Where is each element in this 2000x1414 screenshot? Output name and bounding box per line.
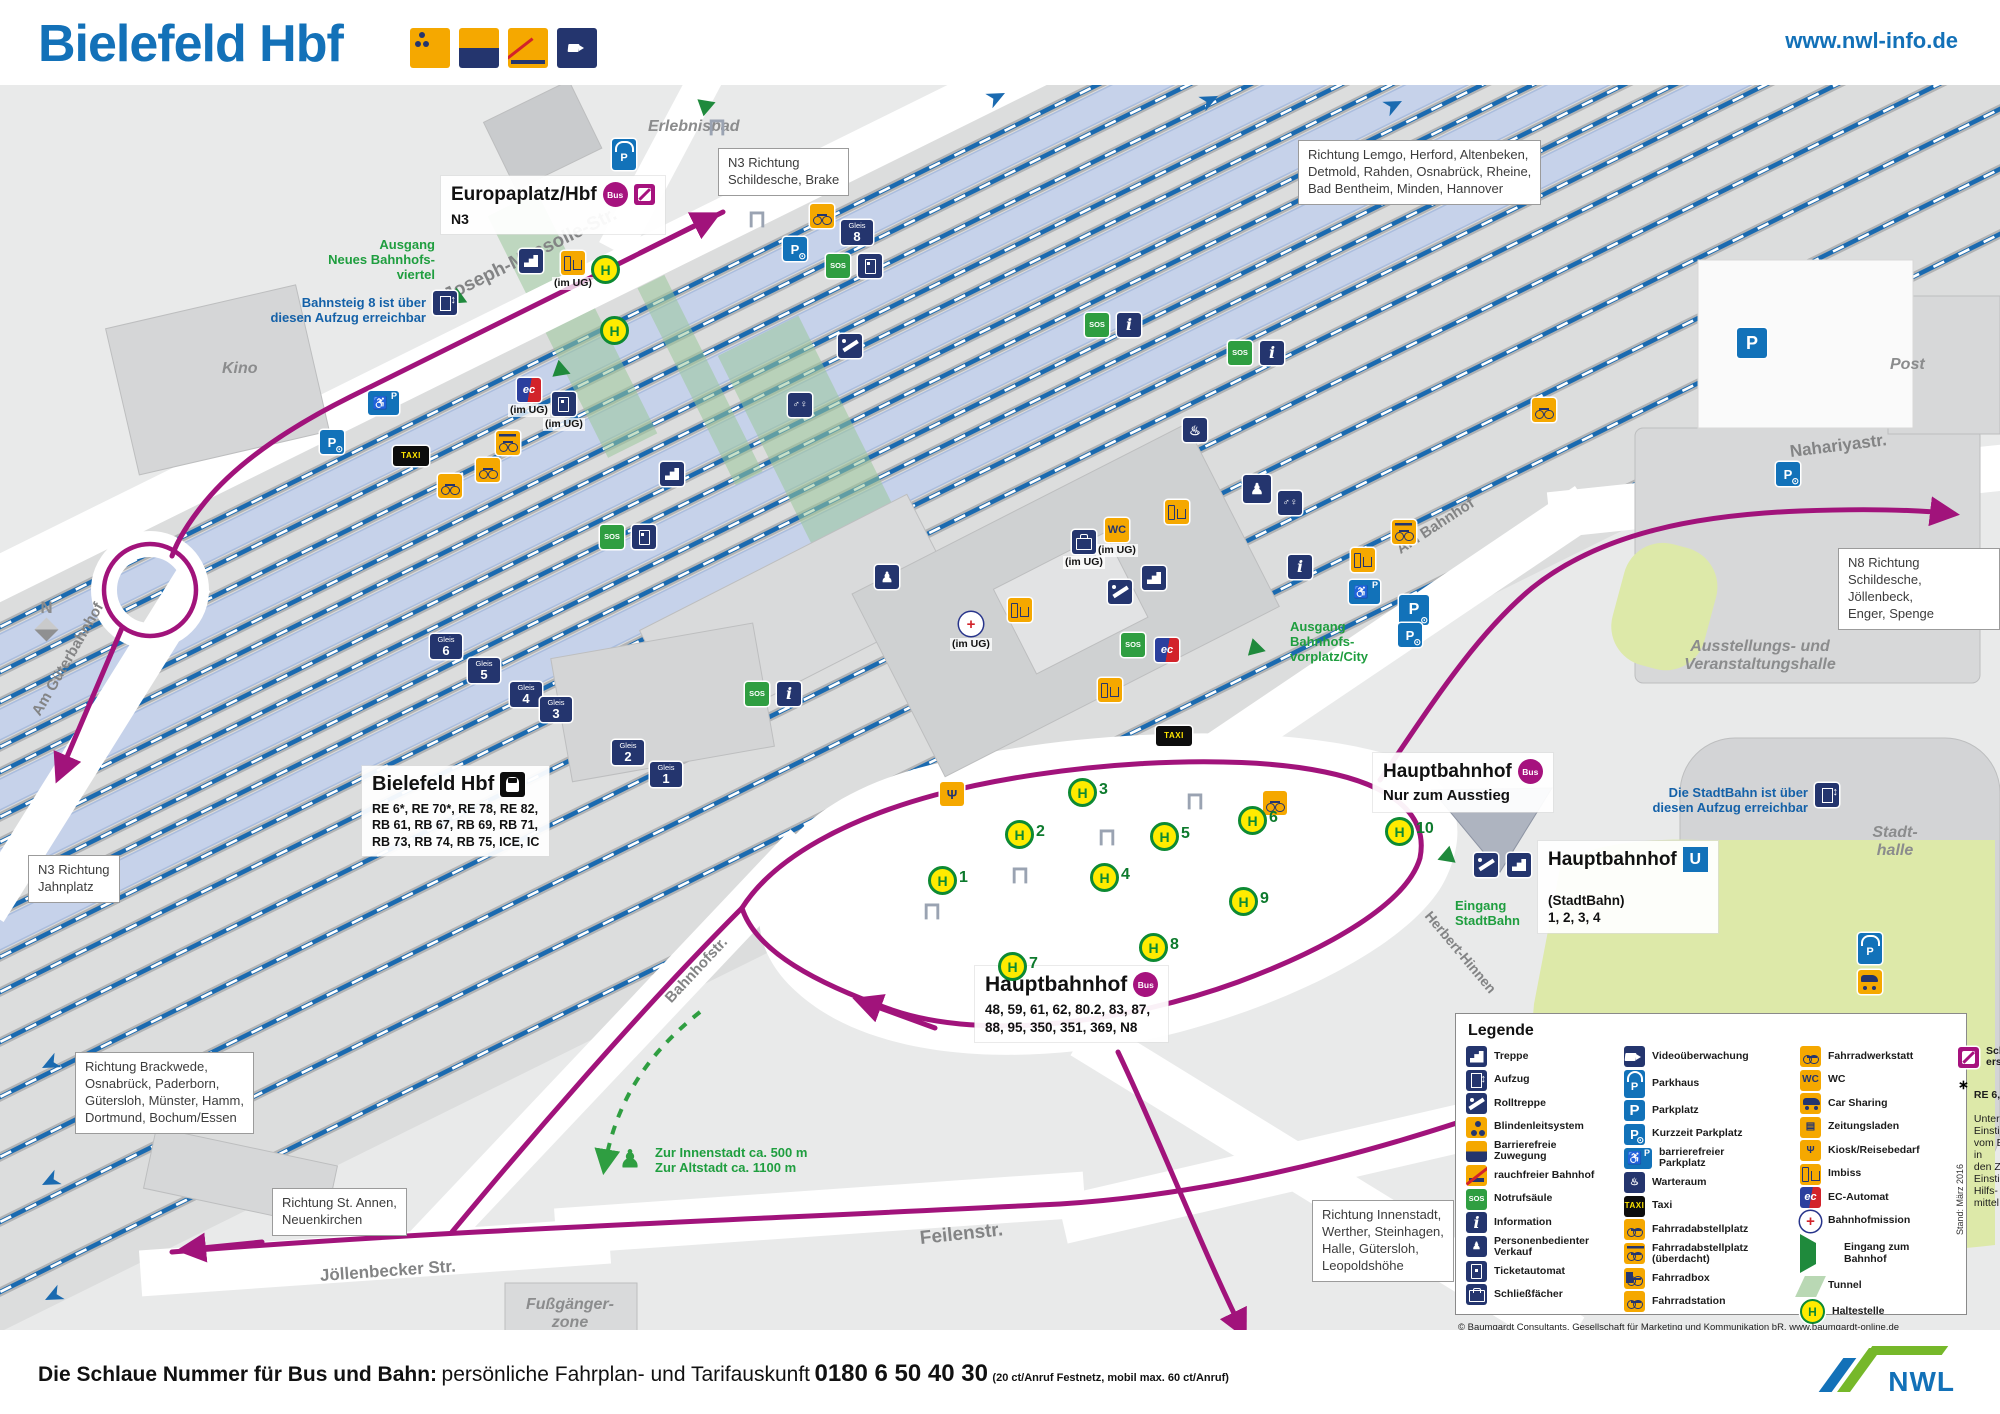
kurzzeit-parkplatz-icon: P xyxy=(1399,595,1429,625)
taxi-glyph: TAXI xyxy=(1156,726,1192,746)
legend-item: Fahrradstation xyxy=(1624,1291,1792,1312)
wc-icon: WC xyxy=(1800,1070,1821,1091)
stairs-glyph xyxy=(519,249,543,273)
station-box-hauptbahnhof-exit: Hauptbahnhof Bus Nur zum Ausstieg xyxy=(1373,753,1553,812)
gleis-number: 6 xyxy=(430,644,462,657)
bus-badge: Bus xyxy=(1518,759,1543,784)
bus-stop: H xyxy=(600,316,629,345)
legend-column-3: FahrradwerkstattWCWCCar Sharing▤Zeitungs… xyxy=(1800,1046,1950,1324)
bus-stop-10: H10 xyxy=(1385,817,1414,846)
shelter-icon: ⊓ xyxy=(920,900,944,924)
direction-box: N3 Richtung Jahnplatz xyxy=(28,855,120,903)
legend-label: Eingang zum Bahnhof xyxy=(1844,1242,1909,1265)
warteraum-glyph: ♨ xyxy=(1183,418,1207,442)
shelter-glyph: ⊓ xyxy=(1008,864,1032,888)
fahrradwerkstatt-glyph xyxy=(1532,398,1556,422)
imbiss-glyph xyxy=(561,251,585,275)
parkhaus-glyph: P xyxy=(612,139,636,170)
kurzzeit-parkplatz-glyph: P xyxy=(1776,462,1800,486)
stop-number: 10 xyxy=(1416,820,1434,838)
legend-label: Imbiss xyxy=(1828,1168,1861,1179)
videoueberwachung-icon xyxy=(557,28,597,68)
legend: Legende TreppeAufzugRolltreppeBlindenlei… xyxy=(1455,1013,1967,1315)
station-name: Bielefeld Hbf xyxy=(372,773,494,796)
imbiss-icon xyxy=(1165,500,1189,524)
legend-item: ♨Warteraum xyxy=(1624,1172,1792,1193)
zeitungsladen-icon: ▤ xyxy=(1800,1117,1821,1138)
legend-label: Taxi xyxy=(1652,1200,1672,1211)
information-icon: i xyxy=(1288,555,1312,579)
toilets-icon: ♂♀ xyxy=(788,393,812,417)
kurzzeit-parkplatz-glyph: P xyxy=(1398,623,1422,647)
exit-note: Nur zum Ausstieg xyxy=(1383,786,1543,806)
information-icon: i xyxy=(777,682,801,706)
fahrradwerkstatt-icon xyxy=(1532,398,1556,422)
barrierefreier-parkplatz-icon: ♿ xyxy=(368,391,399,415)
entrance-stadtbahn-glyph xyxy=(1434,846,1455,868)
legend-label: Rolltreppe xyxy=(1494,1098,1546,1109)
ec-automat-icon: ec xyxy=(1155,638,1179,662)
im-ug-caption: (im UG) xyxy=(543,418,585,431)
legend-note-text: Unterschiedliche Einstiegshöhen vom Bahn… xyxy=(1974,1113,2000,1209)
schienenersatzverkehr-icon xyxy=(1958,1047,1979,1068)
area-label: Kino xyxy=(222,360,258,378)
bus-stop-1: H1 xyxy=(928,866,957,895)
bus-badge: Bus xyxy=(603,182,628,207)
aufzug-icon xyxy=(1815,783,1839,807)
legend-item: Fahrradabstellplatz xyxy=(1624,1219,1792,1240)
legend-label: Fahrradbox xyxy=(1652,1273,1710,1284)
station-name: Hauptbahnhof xyxy=(1383,761,1512,783)
blindenleitsystem-icon xyxy=(410,28,450,68)
tunnel-icon xyxy=(1795,1276,1826,1297)
kiosk-glyph: Ψ xyxy=(940,782,964,806)
compass-icon: N xyxy=(38,598,55,638)
taxi-icon: TAXI xyxy=(393,446,429,466)
aufzug-icon xyxy=(1466,1070,1487,1091)
stairs-icon xyxy=(519,249,543,273)
imbiss-icon xyxy=(1008,598,1032,622)
station-name: Hauptbahnhof xyxy=(1548,849,1677,871)
videoueberwachung-icon xyxy=(1624,1046,1645,1067)
legend-label: Schließfächer xyxy=(1494,1289,1563,1300)
legend-label: Warteraum xyxy=(1652,1177,1706,1188)
gleis-number: 1 xyxy=(650,772,682,785)
footer-phone-note: (20 ct/Anruf Festnetz, mobil max. 60 ct/… xyxy=(992,1372,1229,1384)
gleis-badge: Gleis3 xyxy=(540,697,572,722)
train-services: RE 6*, RE 70*, RE 78, RE 82, RB 61, RB 6… xyxy=(372,801,539,850)
page-title: Bielefeld Hbf xyxy=(38,14,343,74)
shelter-icon: ⊓ xyxy=(1008,864,1032,888)
barrierefreier-parkplatz-icon: ♿ xyxy=(1624,1148,1652,1169)
kurzzeit-parkplatz-icon: P xyxy=(1624,1124,1645,1145)
green-note: Ausgang Neues Bahnhofs- viertel xyxy=(275,238,435,283)
ticketautomat-icon xyxy=(632,525,656,549)
stairs-glyph xyxy=(1142,566,1166,590)
haltestelle-icon: H xyxy=(600,316,629,345)
haltestelle-icon: H xyxy=(1090,863,1119,892)
bus-stop-2: H2 xyxy=(1005,820,1034,849)
logo-roof-green xyxy=(1866,1346,1949,1355)
barrierefreier-parkplatz-glyph: ♿ xyxy=(1349,580,1380,604)
bus-services: 48, 59, 61, 62, 80.2, 83, 87, 88, 95, 35… xyxy=(985,1001,1158,1036)
stop-number: 1 xyxy=(959,869,968,887)
area-label: Fußgänger- zone xyxy=(505,1296,635,1333)
entrance-bahnhofsviertel-glyph xyxy=(552,360,573,382)
notrufsaeule-icon: SOS xyxy=(1228,341,1252,365)
ticketautomat-icon xyxy=(858,254,882,278)
station-map-page: Bielefeld Hbf www.nwl-info.de N Europapl… xyxy=(0,0,2000,1414)
kurzzeit-parkplatz-icon: P xyxy=(783,237,807,261)
rolltreppe-icon xyxy=(1466,1093,1487,1114)
direction-box: Richtung Lemgo, Herford, Altenbeken, Det… xyxy=(1298,140,1541,205)
taxi-glyph: TAXI xyxy=(393,446,429,466)
shelter-icon: ⊓ xyxy=(705,116,729,140)
station-box-bielefeld-hbf: Bielefeld Hbf RE 6*, RE 70*, RE 78, RE 8… xyxy=(362,766,549,856)
shelter-glyph: ⊓ xyxy=(1095,826,1119,850)
parkhaus-icon: P xyxy=(1858,933,1882,964)
wc-glyph: WC xyxy=(1105,518,1129,542)
kurzzeit-parkplatz-icon: P xyxy=(1398,623,1422,647)
fahrrad-parkplatz-glyph xyxy=(496,431,520,455)
notrufsaeule-glyph: SOS xyxy=(745,682,769,706)
imbiss-glyph xyxy=(1008,598,1032,622)
header-icons xyxy=(410,28,597,68)
legend-item: ΨKiosk/Reisebedarf xyxy=(1800,1140,1950,1161)
haltestelle-icon: H xyxy=(1150,822,1179,851)
im-ug-caption: (im UG) xyxy=(950,638,992,651)
information-glyph: i xyxy=(777,682,801,706)
legend-item: ♿barrierefreier Parkplatz xyxy=(1624,1147,1792,1170)
haltestelle-icon: H xyxy=(1068,778,1097,807)
fahrradabstellplatz-icon xyxy=(1624,1219,1645,1240)
haltestelle-icon: H xyxy=(1229,887,1258,916)
legend-item: ♟Personenbedienter Verkauf xyxy=(1466,1236,1616,1259)
stadtbahn-line: N3 xyxy=(451,210,655,228)
shelter-glyph: ⊓ xyxy=(705,116,729,140)
fahrrad-parkplatz-icon xyxy=(1392,520,1416,544)
ec-automat-glyph: ec xyxy=(1155,638,1179,662)
blindenleitsystem-icon xyxy=(1466,1117,1487,1138)
parkplatz-glyph: P xyxy=(1737,328,1767,358)
warteraum-icon: ♨ xyxy=(1183,418,1207,442)
warteraum-icon: ♨ xyxy=(1624,1172,1645,1193)
area-label: Ausstellungs- und Veranstaltungshalle xyxy=(1660,638,1860,675)
gleis-number: 2 xyxy=(612,750,644,763)
gleis-number: 8 xyxy=(841,230,873,243)
legend-item: Treppe xyxy=(1466,1046,1616,1067)
legend-label: Information xyxy=(1494,1217,1552,1228)
information-icon: i xyxy=(1466,1212,1487,1233)
legend-label: Schienen- ersatzverkehr xyxy=(1986,1046,2000,1069)
legend-item: Tunnel xyxy=(1800,1276,1950,1297)
ticketautomat-glyph xyxy=(858,254,882,278)
legend-label: Parkplatz xyxy=(1652,1105,1699,1116)
station-name: Europaplatz/Hbf xyxy=(451,184,597,206)
legend-label: Barrierefreie Zuwegung xyxy=(1494,1140,1556,1163)
station-box-europaplatz: Europaplatz/Hbf Bus N3 xyxy=(441,176,665,234)
bus-stop-4: H4 xyxy=(1090,863,1119,892)
bahnhofmission-icon: + xyxy=(1800,1211,1821,1232)
notrufsaeule-icon: SOS xyxy=(745,682,769,706)
bus-stop-5: H5 xyxy=(1150,822,1179,851)
gleis-badge: Gleis1 xyxy=(650,762,682,787)
legend-label: Treppe xyxy=(1494,1051,1528,1062)
fahrrad-abstellplatz-icon xyxy=(476,458,500,482)
legend-label: Haltestelle xyxy=(1832,1306,1885,1317)
nwl-logo: NWL xyxy=(1817,1344,1955,1398)
area-label: Post xyxy=(1890,356,1925,374)
information-glyph: i xyxy=(1288,555,1312,579)
pedestrian-walk-icon: ♟ xyxy=(618,1148,642,1172)
barrierefreie-zuwegung-icon xyxy=(1466,1141,1487,1162)
imbiss-icon xyxy=(1098,678,1122,702)
bus-badge: Bus xyxy=(1133,972,1158,997)
legend-label: Blindenleitsystem xyxy=(1494,1121,1584,1132)
legend-label: Videoüberwachung xyxy=(1652,1051,1749,1062)
gleis-badge: Gleis4 xyxy=(510,682,542,707)
barrierefreier-parkplatz-icon: ♿ xyxy=(1349,580,1380,604)
bahnhofmission-glyph: + xyxy=(959,612,983,636)
gleis-number: 5 xyxy=(468,668,500,681)
personenbedienter-verkauf-icon: ♟ xyxy=(1466,1236,1487,1257)
legend-item: Videoüberwachung xyxy=(1624,1046,1792,1067)
legend-label: Fahrradwerkstatt xyxy=(1828,1051,1913,1062)
escalator-glyph xyxy=(1108,580,1132,604)
bus-stop-7: H7 xyxy=(998,952,1027,981)
footer-phone: 0180 6 50 40 30 xyxy=(814,1360,988,1387)
legend-label: Car Sharing xyxy=(1828,1098,1888,1109)
rauchfreier-bahnhof-icon xyxy=(508,28,548,68)
gleis-badge: Gleis6 xyxy=(430,634,462,659)
legend-item: Rolltreppe xyxy=(1466,1093,1616,1114)
map-date: Stand: März 2016 xyxy=(1955,1164,1965,1235)
entrance-stadtbahn-icon xyxy=(1437,848,1453,866)
personenbedienter-verkauf-glyph: ♟ xyxy=(1243,475,1271,503)
kurzzeit-parkplatz-icon: P xyxy=(1776,462,1800,486)
fahrradstation-icon xyxy=(1624,1291,1645,1312)
ticketautomat-glyph xyxy=(632,525,656,549)
escalator-icon xyxy=(1108,580,1132,604)
stairs-glyph xyxy=(660,462,684,486)
legend-item: +Bahnhofmission xyxy=(1800,1211,1950,1232)
fahrrad-parkplatz-glyph xyxy=(1392,520,1416,544)
ticketautomat-glyph xyxy=(552,392,576,416)
legend-label: barrierefreier Parkplatz xyxy=(1659,1147,1724,1170)
haltestelle-icon: H xyxy=(928,866,957,895)
legend-item: ecEC-Automat xyxy=(1800,1187,1950,1208)
legend-label: Fahrradstation xyxy=(1652,1296,1726,1307)
fahrradwerkstatt-icon xyxy=(1800,1046,1821,1067)
kurzzeit-parkplatz-icon: P xyxy=(320,430,344,454)
aufzug-glyph xyxy=(1815,783,1839,807)
escalator-glyph xyxy=(1474,853,1498,877)
station-box-stadtbahn: Hauptbahnhof U (StadtBahn) 1, 2, 3, 4 xyxy=(1538,841,1718,933)
legend-label: Ticketautomat xyxy=(1494,1266,1565,1277)
direction-box: Richtung St. Annen, Neuenkirchen xyxy=(272,1188,407,1236)
barrierefreier-parkplatz-glyph: ♿ xyxy=(368,391,399,415)
logo-text: NWL xyxy=(1888,1366,1955,1398)
barrierefreie-zuwegung-icon xyxy=(459,28,499,68)
legend-title: Legende xyxy=(1468,1022,1956,1040)
legend-item: Fahrradbox xyxy=(1624,1268,1792,1289)
gleis-number: 4 xyxy=(510,692,542,705)
legend-item: Car Sharing xyxy=(1800,1093,1950,1114)
bus-stop-8: H8 xyxy=(1139,933,1168,962)
stop-number: 7 xyxy=(1029,955,1038,973)
footer-lead: persönliche Fahrplan- und Tarifauskunft xyxy=(442,1363,811,1386)
legend-item: TAXITaxi xyxy=(1624,1196,1792,1217)
green-note: Eingang StadtBahn xyxy=(1455,899,1520,929)
fahrrad-abstellplatz-glyph xyxy=(476,458,500,482)
legend-item: Aufzug xyxy=(1466,1070,1616,1091)
shelter-glyph: ⊓ xyxy=(920,900,944,924)
bus-stop: H xyxy=(591,255,620,284)
information-icon: i xyxy=(1260,341,1284,365)
haltestelle-icon: H xyxy=(1139,933,1168,962)
legend-label: Notrufsäule xyxy=(1494,1193,1552,1204)
notrufsaeule-glyph: SOS xyxy=(1085,313,1109,337)
fahrrad-parkplatz-glyph xyxy=(810,204,834,228)
entrance-erlebnisbad-icon xyxy=(700,96,716,114)
haltestelle-icon: H xyxy=(1005,820,1034,849)
stadtbahn-lines: 1, 2, 3, 4 xyxy=(1548,910,1601,925)
fahrrad-abstellplatz-icon xyxy=(438,474,462,498)
aufzug-glyph xyxy=(433,291,457,315)
stop-number: 8 xyxy=(1170,936,1179,954)
stop-number: 9 xyxy=(1260,890,1269,908)
u-bahn-badge: U xyxy=(1683,847,1708,872)
green-note: Zur Innenstadt ca. 500 m Zur Altstadt ca… xyxy=(655,1146,807,1176)
entrance-vorplatz-glyph xyxy=(1248,638,1268,660)
legend-item: PParkhaus xyxy=(1624,1070,1792,1098)
information-glyph: i xyxy=(1117,313,1141,337)
escalator-icon xyxy=(1474,853,1498,877)
legend-item: rauchfreier Bahnhof xyxy=(1466,1165,1616,1186)
notrufsaeule-icon: SOS xyxy=(1085,313,1109,337)
schliessfaecher-icon: (im UG) xyxy=(1063,530,1105,569)
gleis-badge: Gleis5 xyxy=(468,658,500,683)
car-sharing-icon xyxy=(1800,1093,1821,1114)
legend-item: Ticketautomat xyxy=(1466,1261,1616,1282)
kurzzeit-parkplatz-glyph: P xyxy=(1399,595,1429,625)
shelter-icon: ⊓ xyxy=(1183,790,1207,814)
stop-number: 3 xyxy=(1099,781,1108,799)
im-ug-caption: (im UG) xyxy=(552,277,594,290)
haltestelle-icon: H xyxy=(1800,1299,1825,1324)
notrufsaeule-icon: SOS xyxy=(1121,633,1145,657)
gleis-number: 3 xyxy=(540,707,572,720)
legend-label: rauchfreier Bahnhof xyxy=(1494,1170,1594,1181)
legend-item: ▤Zeitungsladen xyxy=(1800,1117,1950,1138)
gleis-badge: Gleis8 xyxy=(841,220,873,245)
imbiss-glyph xyxy=(1165,500,1189,524)
carsharing-glyph xyxy=(1858,970,1882,994)
haltestelle-icon: H xyxy=(998,952,1027,981)
taxi-icon: TAXI xyxy=(1624,1196,1645,1217)
fahrradabstellplatz-ueberdacht-icon xyxy=(1624,1243,1645,1264)
legend-label: EC-Automat xyxy=(1828,1192,1889,1203)
personenbedienter-verkauf-icon: ♟ xyxy=(1243,475,1271,503)
notrufsaeule-glyph: SOS xyxy=(826,254,850,278)
escalator-glyph xyxy=(838,334,862,358)
ticketautomat-icon xyxy=(1466,1261,1487,1282)
direction-box: Richtung Brackwede, Osnabrück, Paderborn… xyxy=(75,1052,254,1134)
legend-label: WC xyxy=(1828,1074,1846,1085)
parkhaus-glyph: P xyxy=(1858,933,1882,964)
imbiss-icon: (im UG) xyxy=(552,251,594,290)
stairs-icon xyxy=(1507,853,1531,877)
green-note: Ausgang Bahnhofs- vorplatz/City xyxy=(1290,620,1368,665)
legend-item: Schließfächer xyxy=(1466,1284,1616,1305)
ec-automat-icon: ec xyxy=(1800,1187,1821,1208)
legend-label: Aufzug xyxy=(1494,1074,1530,1085)
legend-item: PParkplatz xyxy=(1624,1100,1792,1121)
ticketautomat-icon: (im UG) xyxy=(543,392,585,431)
notrufsaeule-icon: SOS xyxy=(1466,1189,1487,1210)
legend-label: Zeitungsladen xyxy=(1828,1121,1899,1132)
imbiss-glyph xyxy=(1351,548,1375,572)
toilets-glyph: ♂♀ xyxy=(1278,491,1302,515)
legend-item: WCWC xyxy=(1800,1070,1950,1091)
legend-column-1: TreppeAufzugRolltreppeBlindenleitsystemB… xyxy=(1466,1046,1616,1324)
pedestrian-icon: ♟ xyxy=(875,565,899,589)
legend-item: HHaltestelle xyxy=(1800,1299,1950,1324)
bus-stop-9: H9 xyxy=(1229,887,1258,916)
schliessfaecher-glyph xyxy=(1072,530,1096,554)
parkplatz-icon: P xyxy=(1624,1100,1645,1121)
notrufsaeule-glyph: SOS xyxy=(1228,341,1252,365)
imbiss-icon xyxy=(1800,1164,1821,1185)
legend-label: Bahnhofmission xyxy=(1828,1215,1910,1226)
haltestelle-icon: H xyxy=(1385,817,1414,846)
notrufsaeule-glyph: SOS xyxy=(600,525,624,549)
haltestelle-icon: H xyxy=(591,255,620,284)
parkhaus-icon: P xyxy=(612,139,636,170)
imbiss-glyph xyxy=(1098,678,1122,702)
kurzzeit-parkplatz-glyph: P xyxy=(320,430,344,454)
website-link[interactable]: www.nwl-info.de xyxy=(1785,28,1958,54)
notrufsaeule-glyph: SOS xyxy=(1121,633,1145,657)
stop-number: 5 xyxy=(1181,825,1190,843)
entrance-erlebnisbad-glyph xyxy=(697,94,718,116)
notrufsaeule-icon: SOS xyxy=(826,254,850,278)
fahrrad-parkplatz-icon xyxy=(496,431,520,455)
fahrradbox-icon xyxy=(1624,1268,1645,1289)
taxi-icon: TAXI xyxy=(1156,726,1192,746)
stairs-icon xyxy=(660,462,684,486)
direction-box: N3 Richtung Schildesche, Brake xyxy=(718,148,849,196)
pedestrian-walk-glyph: ♟ xyxy=(618,1148,642,1172)
legend-item: iInformation xyxy=(1466,1212,1616,1233)
pedestrian-glyph: ♟ xyxy=(875,565,899,589)
kurzzeit-parkplatz-glyph: P xyxy=(783,237,807,261)
rauchfreier-bahnhof-icon xyxy=(1466,1165,1487,1186)
legend-item: Fahrradwerkstatt xyxy=(1800,1046,1950,1067)
legend-label: Fahrradabstellplatz xyxy=(1652,1224,1748,1235)
parkplatz-icon: P xyxy=(1737,328,1767,358)
ec-automat-glyph: ec xyxy=(517,378,541,402)
legend-item: Eingang zum Bahnhof xyxy=(1800,1234,1950,1273)
direction-box: Richtung Innenstadt, Werther, Steinhagen… xyxy=(1312,1200,1454,1282)
stadtbahn-prefix: (StadtBahn) xyxy=(1548,893,1625,908)
kiosk-icon: Ψ xyxy=(1800,1140,1821,1161)
area-label: Stadt- halle xyxy=(1840,824,1950,861)
legend-item: Blindenleitsystem xyxy=(1466,1117,1616,1138)
stop-number: 6 xyxy=(1269,809,1278,827)
parkhaus-icon: P xyxy=(1624,1070,1645,1098)
footer: Die Schlaue Nummer für Bus und Bahn: per… xyxy=(0,1330,2000,1414)
